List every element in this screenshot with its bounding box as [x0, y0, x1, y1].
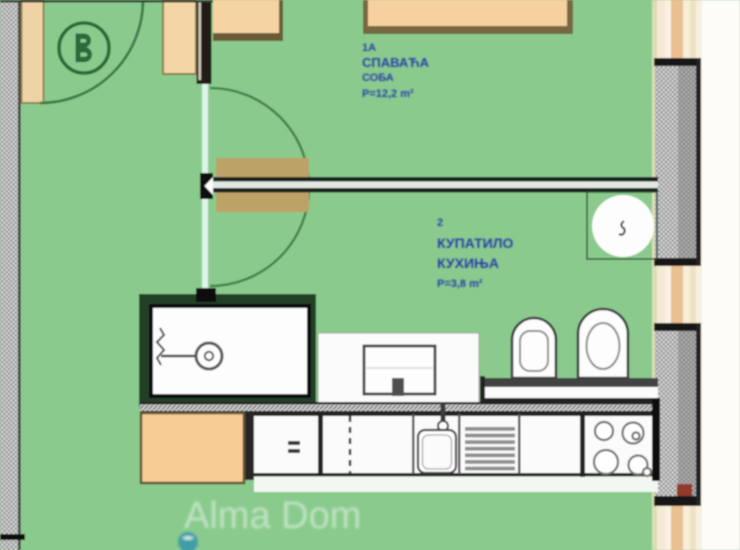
svg-text:Alma Dom: Alma Dom [184, 495, 361, 537]
svg-text:P=3,8 m²: P=3,8 m² [437, 278, 483, 290]
svg-text:1A: 1A [362, 42, 376, 54]
svg-text:СПАВАЋА: СПАВАЋА [362, 55, 430, 70]
svg-text:СОБА: СОБА [362, 72, 394, 84]
svg-text:КУПАТИЛО: КУПАТИЛО [437, 235, 514, 251]
svg-text:КУХИЊА: КУХИЊА [437, 255, 499, 271]
svg-text:P=12,2 m²: P=12,2 m² [362, 88, 414, 100]
svg-text:2: 2 [437, 217, 443, 229]
